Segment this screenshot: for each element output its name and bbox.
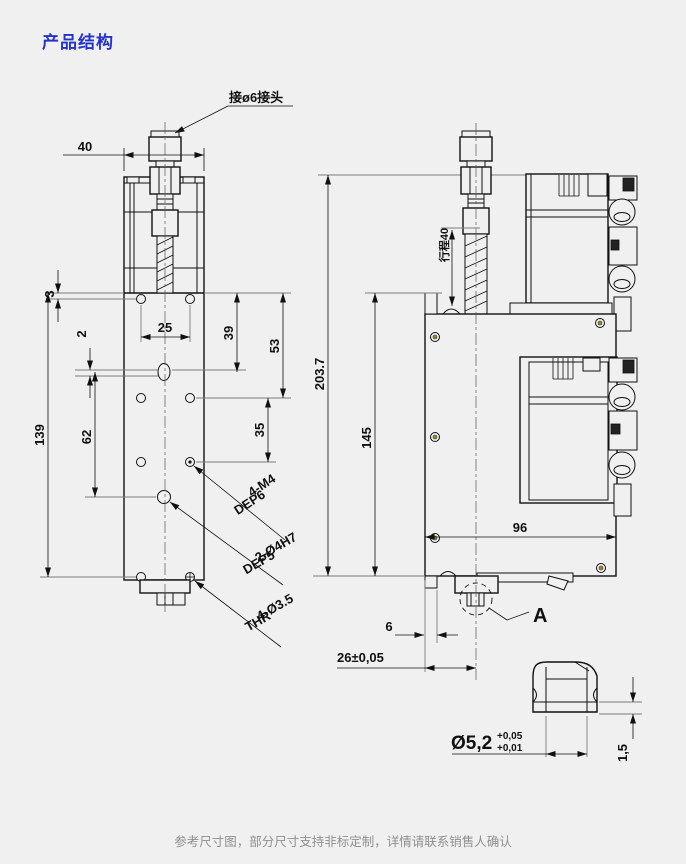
dim-offset-3: 3 (42, 290, 57, 297)
dim-groove-tol-lower: +0,01 (497, 743, 523, 754)
dim-53: 53 (267, 339, 282, 353)
dim-plate-length: 139 (32, 424, 47, 446)
dim-stroke: 行程40 (437, 228, 451, 263)
lower-motor (520, 357, 617, 503)
dim-total-height: 203.7 (312, 358, 327, 391)
dim-hole-pitch: 25 (158, 320, 172, 335)
dim-35: 35 (252, 423, 267, 437)
dim-front-width: 40 (78, 139, 92, 154)
dim-slot-offset: 2 (74, 330, 89, 337)
side-view (318, 123, 637, 680)
dim-groove-dia: Ø5,2 (451, 733, 492, 754)
detail-a-view: Ø5,2 +0,05 +0,01 1,5 (451, 662, 642, 762)
dim-39: 39 (221, 326, 236, 340)
dim-base-width: 96 (513, 520, 527, 535)
dim-plate-height: 145 (359, 427, 374, 449)
label-fitting: 接ø6接头 (229, 90, 283, 105)
dim-foot-width: 6 (385, 619, 392, 634)
detail-a-label: A (533, 605, 547, 627)
dim-groove-width: 1,5 (615, 744, 630, 762)
upper-motor-connectors (609, 176, 637, 331)
dim-hole-span: 62 (79, 430, 94, 444)
technical-drawing: 40 3 139 2 62 25 (0, 0, 686, 864)
dim-pin-offset: 26±0,05 (337, 650, 384, 665)
dim-groove-tol-upper: +0,05 (497, 731, 523, 742)
slider-assembly (425, 572, 573, 616)
footer-note: 参考尺寸图，部分尺寸支持非标定制，详情请联系销售人确认 (0, 831, 686, 850)
upper-motor (510, 174, 612, 314)
front-view (124, 122, 204, 612)
page: 产品结构 (0, 0, 686, 864)
